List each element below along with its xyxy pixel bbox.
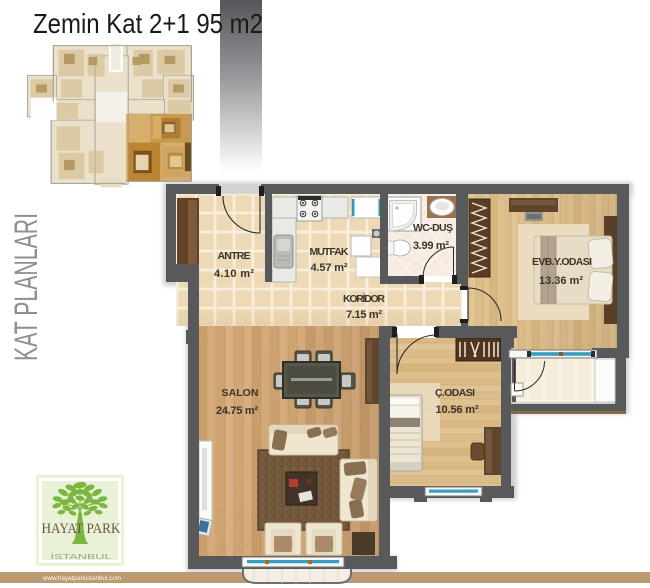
svg-text:WC-DUŞ: WC-DUŞ: [413, 222, 453, 234]
svg-text:www.hayatparkistanbul.com: www.hayatparkistanbul.com: [42, 576, 121, 582]
svg-text:EVB.Y.ODASI: EVB.Y.ODASI: [532, 256, 592, 268]
svg-text:7.15 m²: 7.15 m²: [346, 309, 382, 321]
svg-text:4.10 m²: 4.10 m²: [214, 268, 254, 280]
svg-text:4.57 m²: 4.57 m²: [311, 262, 348, 274]
svg-text:24.75 m²: 24.75 m²: [216, 405, 258, 417]
svg-text:Zemin Kat 2+1 95 m2: Zemin Kat 2+1 95 m2: [33, 8, 263, 39]
svg-text:KORİDOR: KORİDOR: [343, 292, 385, 305]
svg-text:Ç.ODASI: Ç.ODASI: [435, 387, 475, 399]
svg-text:SALON: SALON: [222, 387, 259, 399]
svg-text:10.56 m²: 10.56 m²: [436, 404, 479, 416]
svg-text:3.99 m²: 3.99 m²: [413, 240, 449, 252]
svg-text:MUTFAK: MUTFAK: [310, 246, 349, 258]
svg-text:13.36 m²: 13.36 m²: [539, 275, 583, 287]
svg-text:HAYAT PARK: HAYAT PARK: [42, 521, 121, 537]
svg-text:KAT PLANLARI: KAT PLANLARI: [8, 213, 44, 361]
svg-text:ANTRE: ANTRE: [218, 250, 251, 262]
svg-text:İSTANBUL: İSTANBUL: [51, 552, 112, 561]
